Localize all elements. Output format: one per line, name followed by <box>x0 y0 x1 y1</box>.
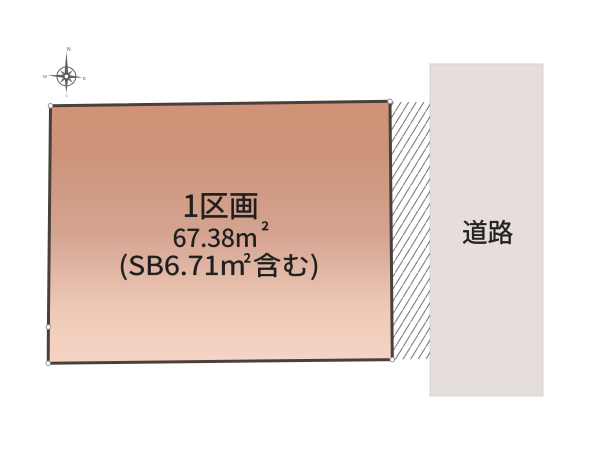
svg-text:S: S <box>65 93 68 98</box>
svg-text:E: E <box>83 76 86 81</box>
svg-text:N: N <box>67 47 71 53</box>
